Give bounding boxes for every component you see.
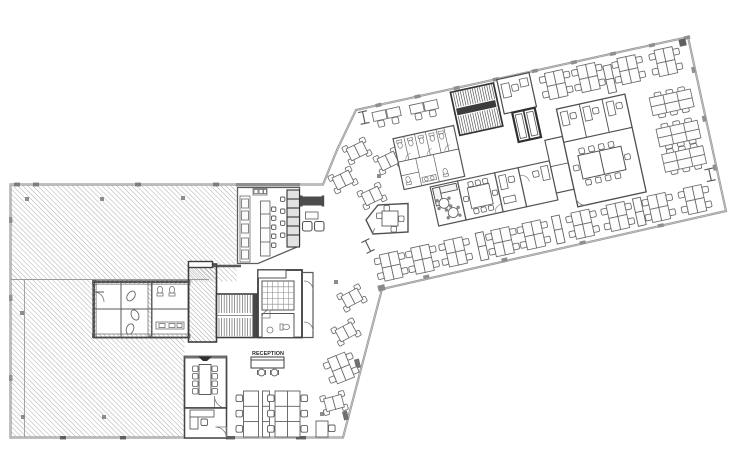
svg-text:RECEPTION: RECEPTION — [252, 351, 284, 357]
